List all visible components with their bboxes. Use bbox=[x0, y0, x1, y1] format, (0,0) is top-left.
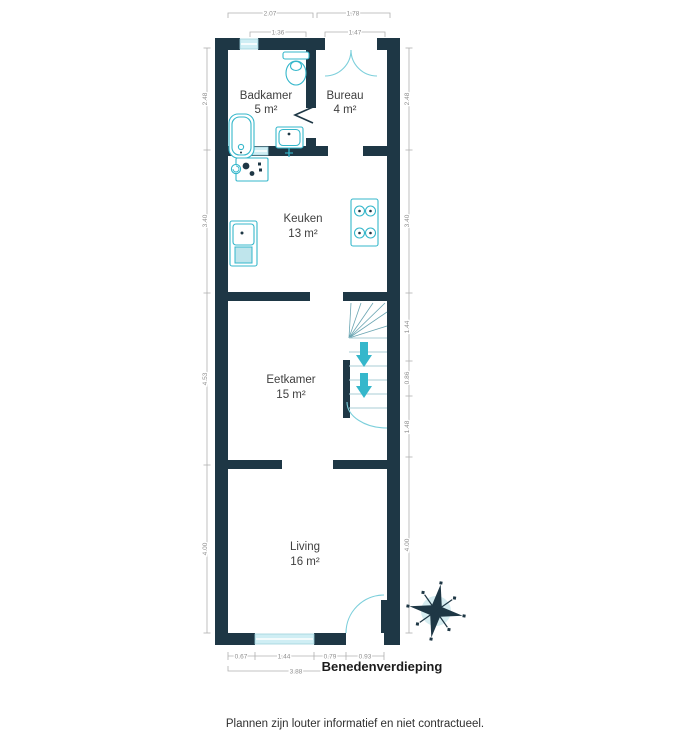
wall-top-seg1 bbox=[215, 38, 240, 50]
room-area-keuken: 13 m² bbox=[288, 228, 318, 240]
wall-eetkamer-top-2 bbox=[343, 292, 387, 301]
dim-bottom-total: 3.88 bbox=[290, 669, 303, 676]
disclaimer-text: Plannen zijn louter informatief en niet … bbox=[226, 718, 484, 730]
room-label-bureau: Bureau bbox=[326, 90, 363, 102]
dim-right-4: 0.86 bbox=[404, 371, 411, 384]
stairs-down-arrow-icon bbox=[356, 342, 372, 367]
room-label-eetkamer: Eetkamer bbox=[266, 374, 315, 386]
stair-winder-line bbox=[349, 303, 385, 338]
cooktop-icon bbox=[231, 158, 268, 181]
staircase bbox=[349, 303, 387, 408]
wall-keuken-top-2 bbox=[363, 146, 387, 156]
dim-right-3: 1.44 bbox=[404, 320, 411, 333]
room-area-eetkamer: 15 m² bbox=[276, 389, 306, 401]
dim-left-1: 2.48 bbox=[202, 92, 209, 105]
dim-right-2: 3.40 bbox=[404, 214, 411, 227]
door-living-arc bbox=[346, 595, 384, 633]
stair-winder-line bbox=[349, 312, 387, 338]
dim-right-6: 4.00 bbox=[404, 538, 411, 551]
room-label-keuken: Keuken bbox=[283, 213, 322, 225]
kitchen-sink-icon bbox=[230, 221, 257, 266]
door-stairs-arc bbox=[347, 402, 387, 428]
dim-bottom-1: 0.67 bbox=[235, 654, 248, 661]
wall-left bbox=[215, 38, 228, 645]
wall-bottom-seg1 bbox=[215, 633, 255, 645]
dim-left-2: 3.40 bbox=[202, 214, 209, 227]
floorplan-drawing: Badkamer 5 m² Bureau 4 m² Keuken 13 m² E… bbox=[0, 0, 682, 736]
floorplan-page: Badkamer 5 m² Bureau 4 m² Keuken 13 m² E… bbox=[0, 0, 682, 736]
dim-right-5: 1.48 bbox=[404, 420, 411, 433]
stove-icon bbox=[351, 199, 378, 246]
dim-left-3: 4.53 bbox=[202, 372, 209, 385]
wall-top-seg2 bbox=[258, 38, 325, 50]
dim-top2-right: 1.47 bbox=[349, 30, 362, 37]
room-label-badkamer: Badkamer bbox=[240, 90, 293, 102]
wall-bottom-seg2 bbox=[314, 633, 346, 645]
dim-bottom-2: 1.44 bbox=[278, 654, 291, 661]
wall-bottom-seg3 bbox=[384, 633, 400, 645]
bathtub-icon bbox=[229, 114, 254, 158]
toilet-icon bbox=[283, 52, 309, 85]
door-badkamer-leaf bbox=[295, 107, 313, 123]
room-label-living: Living bbox=[290, 541, 320, 553]
wall-eetkamer-top-1 bbox=[228, 292, 310, 301]
compass-rose-icon bbox=[401, 576, 471, 646]
dim-right-1: 2.48 bbox=[404, 92, 411, 105]
entrance-double-door-arc-right bbox=[351, 50, 377, 76]
entrance-double-door-arc-left bbox=[325, 50, 351, 76]
wall-living-top-1 bbox=[228, 460, 282, 469]
wall-right bbox=[387, 38, 400, 645]
room-area-badkamer: 5 m² bbox=[255, 104, 278, 116]
stair-winder-line bbox=[349, 303, 373, 338]
dim-top-right: 1.78 bbox=[347, 11, 360, 18]
dim-top2-left: 1.36 bbox=[272, 30, 285, 37]
dim-top-left: 2.07 bbox=[264, 11, 277, 18]
room-area-bureau: 4 m² bbox=[334, 104, 357, 116]
wall-living-top-2 bbox=[333, 460, 387, 469]
door-jamb-bottom-right bbox=[381, 600, 387, 633]
room-area-living: 16 m² bbox=[290, 556, 320, 568]
floor-title: Benedenverdieping bbox=[322, 659, 443, 674]
wall-top-seg3 bbox=[377, 38, 400, 50]
dim-left-4: 4.00 bbox=[202, 542, 209, 555]
